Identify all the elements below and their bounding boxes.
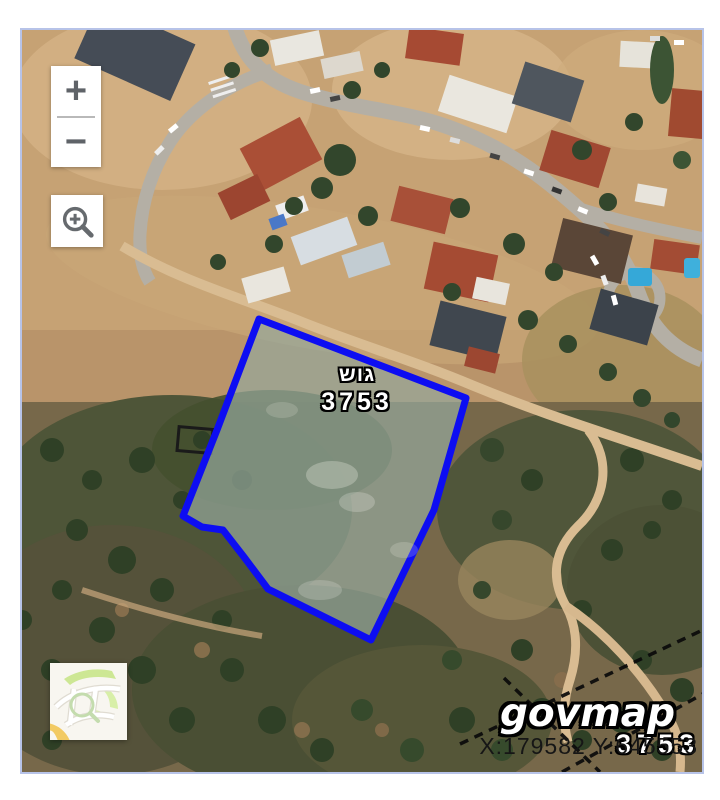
zoom-out-button[interactable]: −	[51, 118, 101, 168]
magnifier-plus-icon	[57, 201, 97, 241]
minus-icon: −	[65, 123, 87, 161]
zoom-in-button[interactable]: +	[51, 66, 101, 116]
zoom-controls: + −	[51, 66, 101, 167]
overview-map-thumbnail	[50, 663, 127, 740]
overview-map-button[interactable]	[50, 663, 127, 740]
plus-icon: +	[65, 72, 87, 110]
aerial-map-canvas[interactable]	[22, 30, 702, 772]
zoom-area-button[interactable]	[51, 195, 103, 247]
